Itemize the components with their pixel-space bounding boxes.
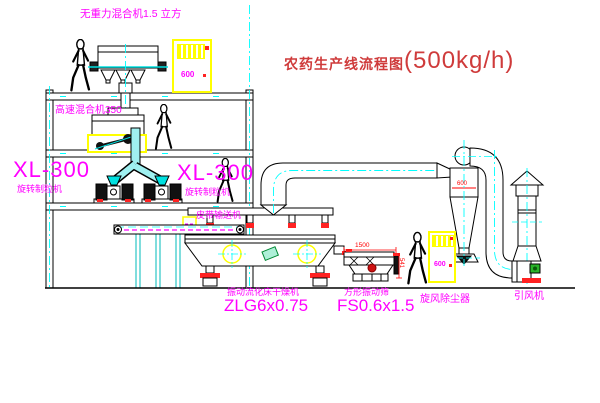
granulator-center-model: XL-300 bbox=[177, 162, 254, 184]
indicator-dot bbox=[450, 237, 453, 240]
control-cabinet-lower: 600 bbox=[428, 231, 456, 283]
granulator-center-name: 旋转制粒机 bbox=[185, 188, 230, 197]
screen-length-dimension: 1500 bbox=[355, 243, 369, 250]
control-cabinet-upper: 600 bbox=[172, 39, 212, 93]
indicator-dot bbox=[203, 74, 206, 77]
vibrating-screen bbox=[344, 247, 402, 281]
cyclone-dimension: 600 bbox=[457, 181, 467, 187]
granulator-left-name: 旋转制粒机 bbox=[17, 185, 62, 194]
dryer-model-label: ZLG6x0.75 bbox=[224, 297, 308, 314]
indicator-dot bbox=[449, 264, 452, 267]
person-icon bbox=[156, 104, 171, 148]
title-text: 农药生产线流程图 bbox=[284, 47, 404, 74]
title-capacity: (500kg/h) bbox=[404, 47, 514, 75]
high-speed-mixer-label: 高速混合机350 bbox=[55, 106, 122, 116]
cyclone-label: 旋风除尘器 bbox=[420, 295, 470, 305]
process-flow-diagram: 600 600 农药生产线流程图 (500kg/h) 无重力混合机1.5 立方 … bbox=[0, 0, 600, 403]
granulator-left bbox=[94, 176, 134, 203]
person-icon bbox=[71, 39, 89, 90]
granulator-left-model: XL-300 bbox=[13, 159, 90, 181]
cabinet-label: 600 bbox=[181, 71, 194, 79]
y-distribution-pipe bbox=[114, 164, 162, 181]
fan-label: 引风机 bbox=[514, 292, 544, 302]
screen-model-label: FS0.6x1.5 bbox=[337, 297, 415, 314]
granulator-right bbox=[142, 176, 182, 203]
belt-conveyor-label: 皮带输送机 bbox=[196, 211, 241, 220]
gravity-mixer-label: 无重力混合机1.5 立方 bbox=[80, 9, 182, 20]
cabinet-label: 600 bbox=[434, 261, 446, 268]
indicator-dot bbox=[205, 46, 209, 50]
cabinet-stripes bbox=[177, 44, 205, 59]
exhaust-duct bbox=[261, 163, 452, 215]
diagram-title: 农药生产线流程图 (500kg/h) bbox=[284, 47, 514, 75]
person-icon bbox=[408, 232, 426, 283]
screen-height-dimension: 541 bbox=[398, 258, 404, 268]
induced-draft-fan bbox=[512, 261, 541, 283]
